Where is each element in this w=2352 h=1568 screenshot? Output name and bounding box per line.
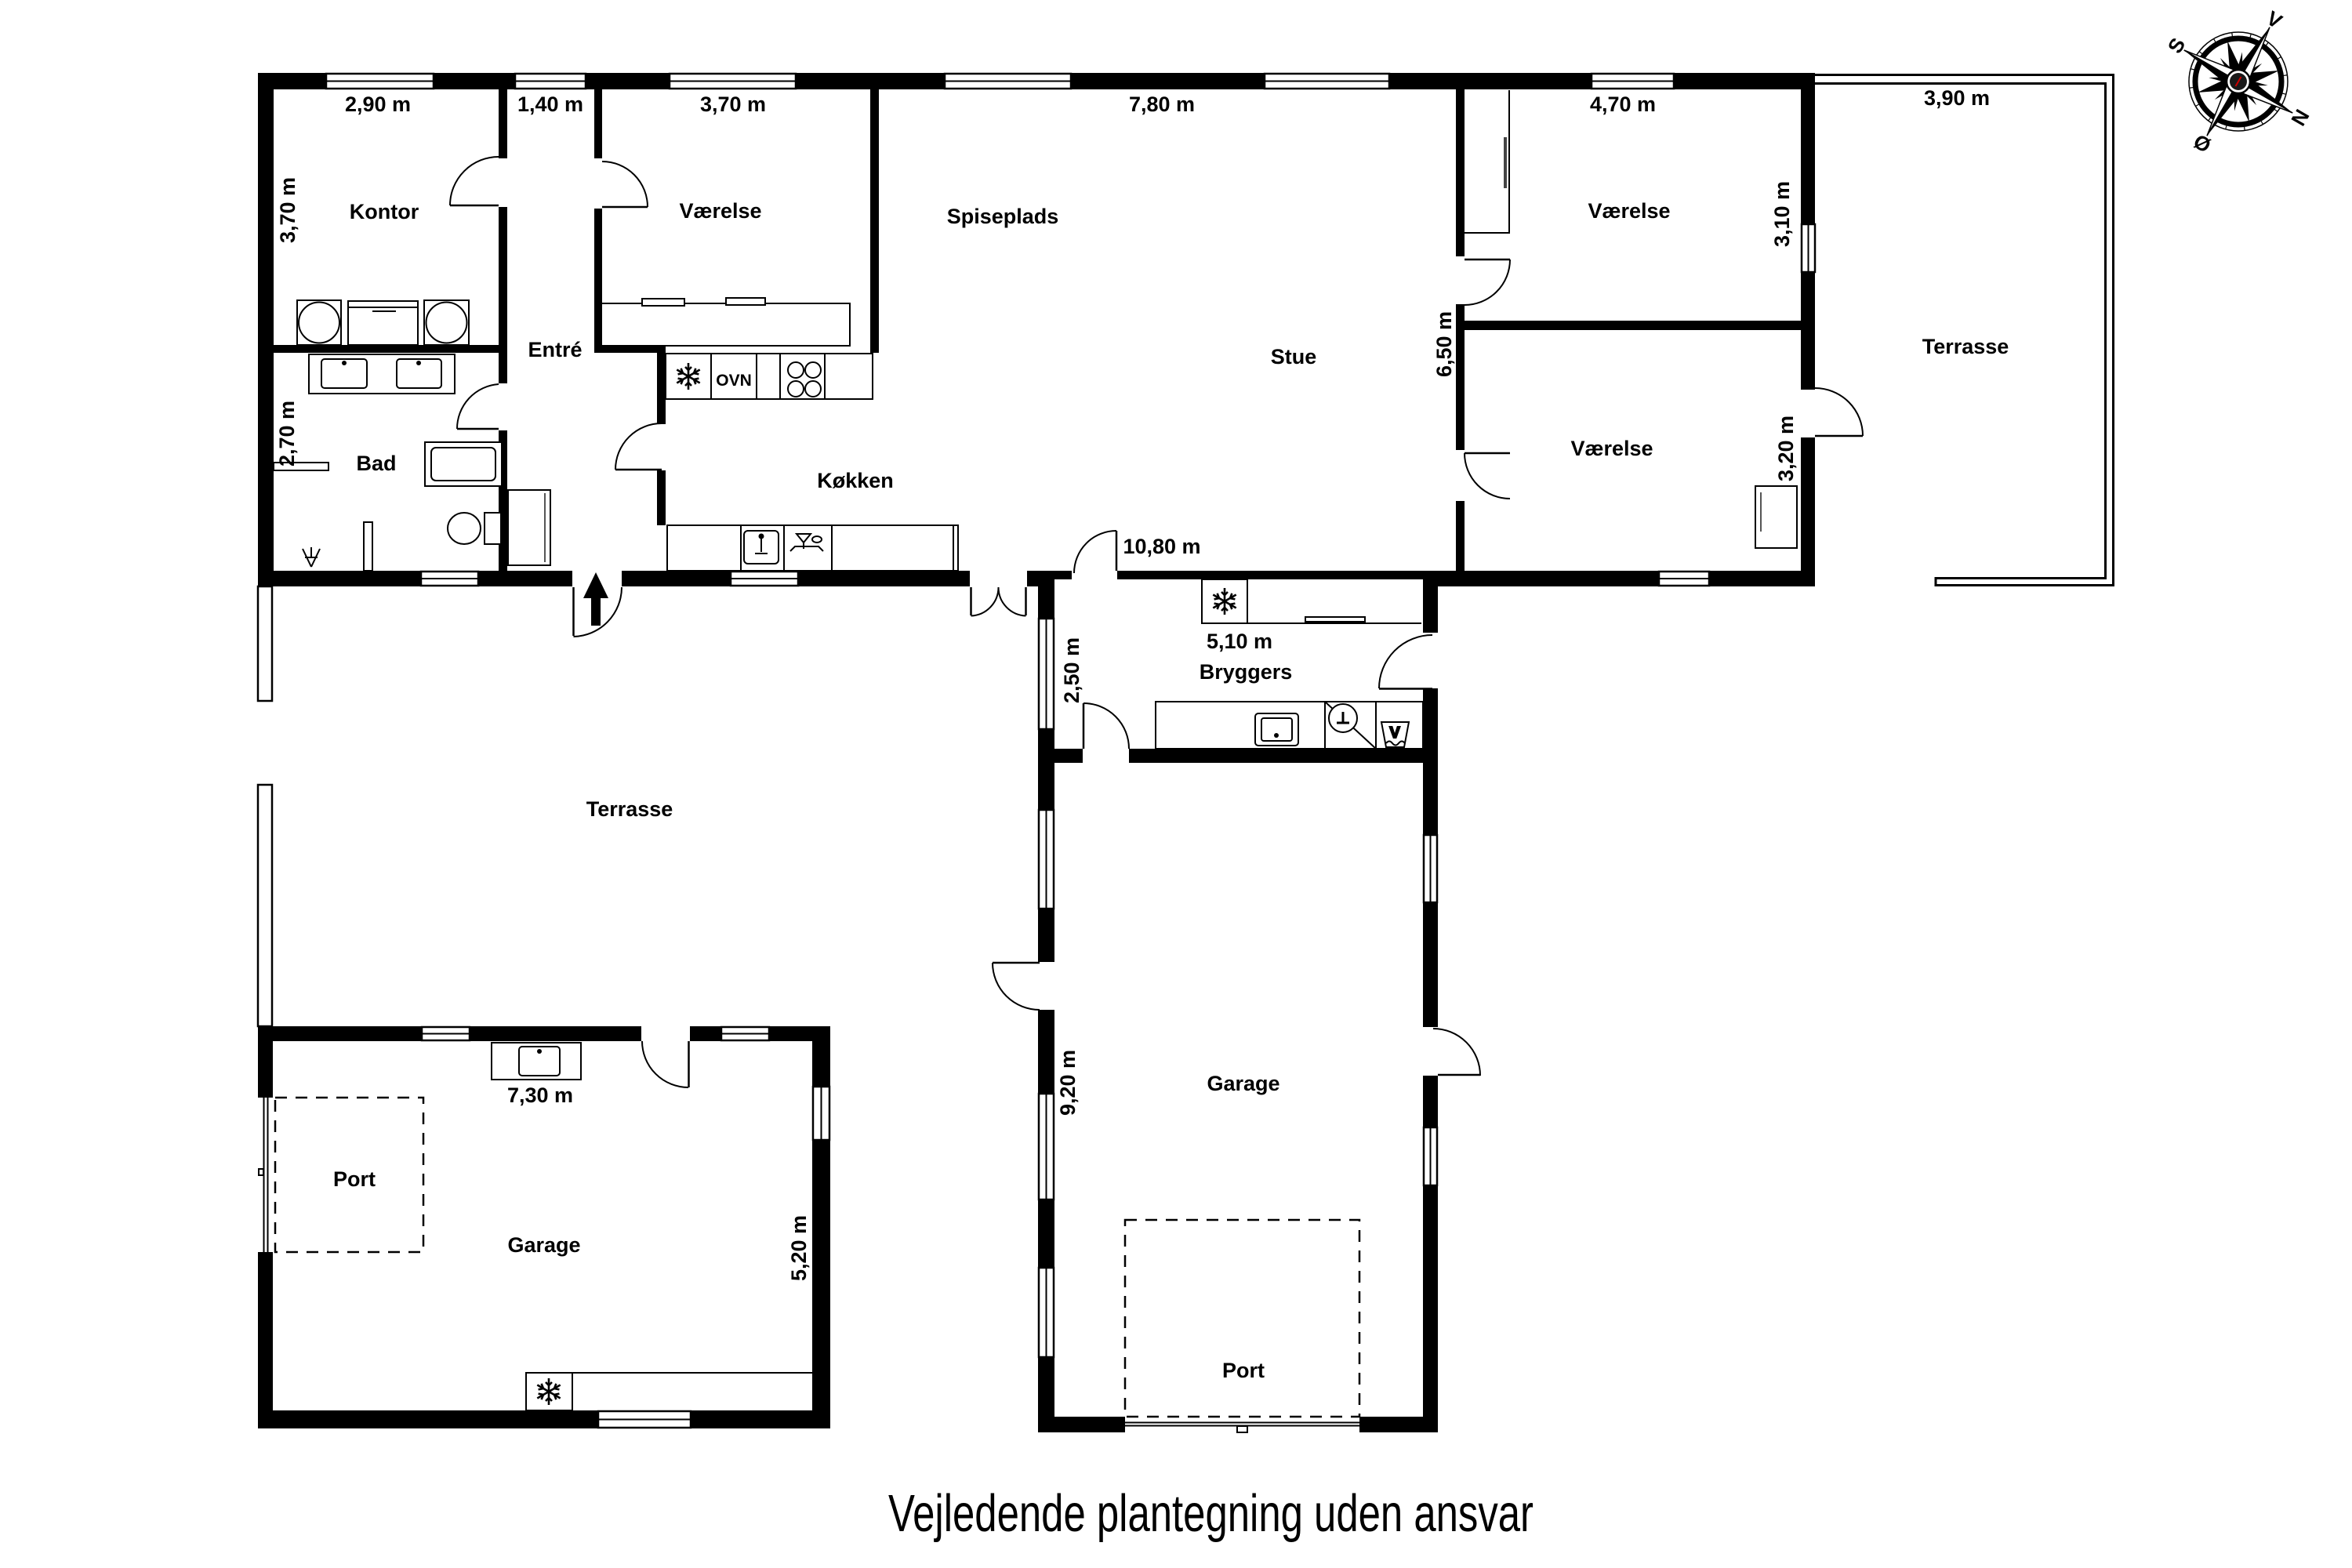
svg-text:4,70 m: 4,70 m [1590, 93, 1656, 116]
svg-text:3,10 m: 3,10 m [1770, 181, 1794, 247]
svg-text:10,80 m: 10,80 m [1123, 535, 1200, 558]
svg-text:2,90 m: 2,90 m [345, 93, 411, 116]
svg-text:Port: Port [333, 1167, 376, 1191]
svg-text:3,90 m: 3,90 m [1924, 86, 1990, 110]
svg-text:2,70 m: 2,70 m [275, 401, 299, 466]
svg-text:5,10 m: 5,10 m [1207, 630, 1272, 653]
svg-text:OVN: OVN [716, 372, 752, 390]
svg-text:Kontor: Kontor [350, 200, 419, 223]
svg-text:Port: Port [1222, 1359, 1265, 1382]
svg-text:Terrasse: Terrasse [1922, 335, 2009, 358]
svg-text:Bad: Bad [356, 452, 396, 475]
svg-text:3,20 m: 3,20 m [1774, 416, 1798, 481]
svg-text:Køkken: Køkken [817, 469, 894, 492]
svg-text:Stue: Stue [1271, 345, 1317, 368]
svg-text:5,20 m: 5,20 m [787, 1215, 811, 1281]
svg-text:2,50 m: 2,50 m [1060, 637, 1083, 703]
svg-text:3,70 m: 3,70 m [700, 93, 766, 116]
svg-text:1,40 m: 1,40 m [517, 93, 583, 116]
svg-text:Vejledende plantegning uden an: Vejledende plantegning uden ansvar [888, 1484, 1534, 1543]
svg-text:7,30 m: 7,30 m [507, 1083, 573, 1107]
svg-text:Spiseplads: Spiseplads [947, 205, 1059, 228]
svg-text:3,70 m: 3,70 m [276, 177, 299, 243]
svg-text:Værelse: Værelse [1588, 199, 1670, 223]
svg-text:Værelse: Værelse [679, 199, 761, 223]
svg-text:Garage: Garage [507, 1233, 580, 1257]
svg-text:7,80 m: 7,80 m [1129, 93, 1195, 116]
svg-text:9,20 m: 9,20 m [1056, 1050, 1080, 1116]
svg-text:Entré: Entré [528, 338, 582, 361]
svg-text:V: V [1389, 724, 1400, 742]
svg-text:6,50 m: 6,50 m [1432, 311, 1456, 377]
svg-text:Værelse: Værelse [1570, 437, 1653, 460]
svg-text:Terrasse: Terrasse [586, 797, 673, 821]
svg-text:Garage: Garage [1207, 1072, 1279, 1095]
svg-text:Bryggers: Bryggers [1200, 660, 1293, 684]
